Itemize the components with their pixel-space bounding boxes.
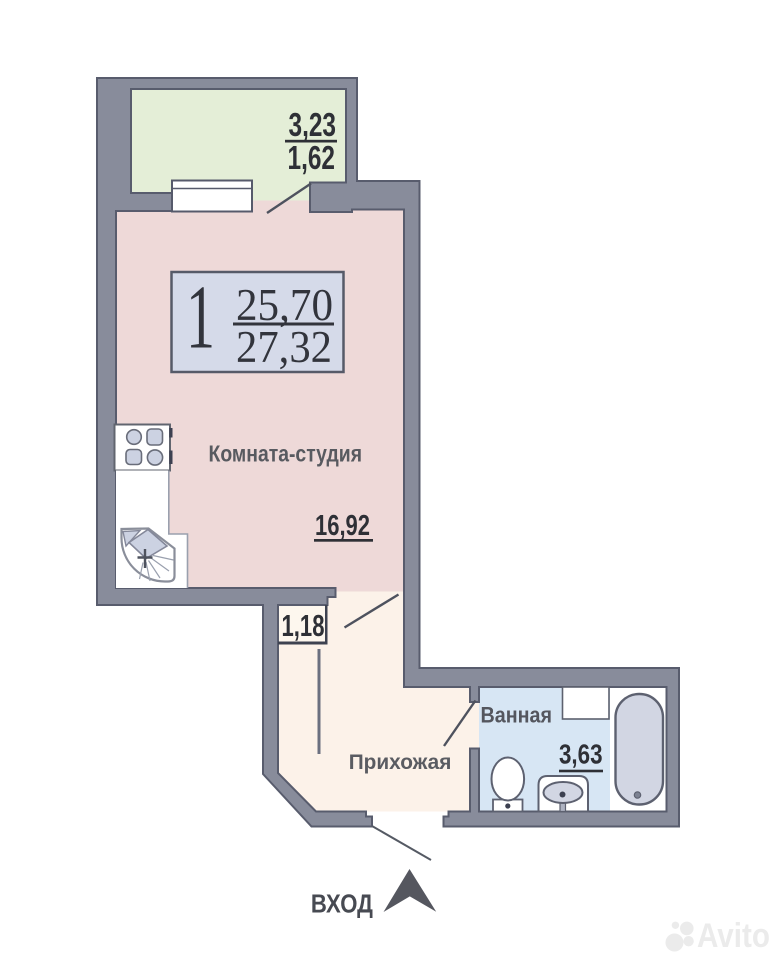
svg-text:Комната-студия: Комната-студия <box>209 441 363 467</box>
svg-text:1,62: 1,62 <box>288 139 336 176</box>
svg-text:16,92: 16,92 <box>315 510 370 542</box>
svg-text:27,32: 27,32 <box>236 321 332 372</box>
svg-text:Прихожая: Прихожая <box>349 750 452 774</box>
svg-text:3,63: 3,63 <box>559 739 603 770</box>
svg-text:ВХОД: ВХОД <box>311 891 373 919</box>
svg-text:Ванная: Ванная <box>481 702 553 727</box>
svg-text:Avito: Avito <box>697 917 770 955</box>
svg-text:1: 1 <box>186 267 215 368</box>
svg-text:1,18: 1,18 <box>282 608 325 643</box>
svg-text:3,23: 3,23 <box>289 106 337 143</box>
